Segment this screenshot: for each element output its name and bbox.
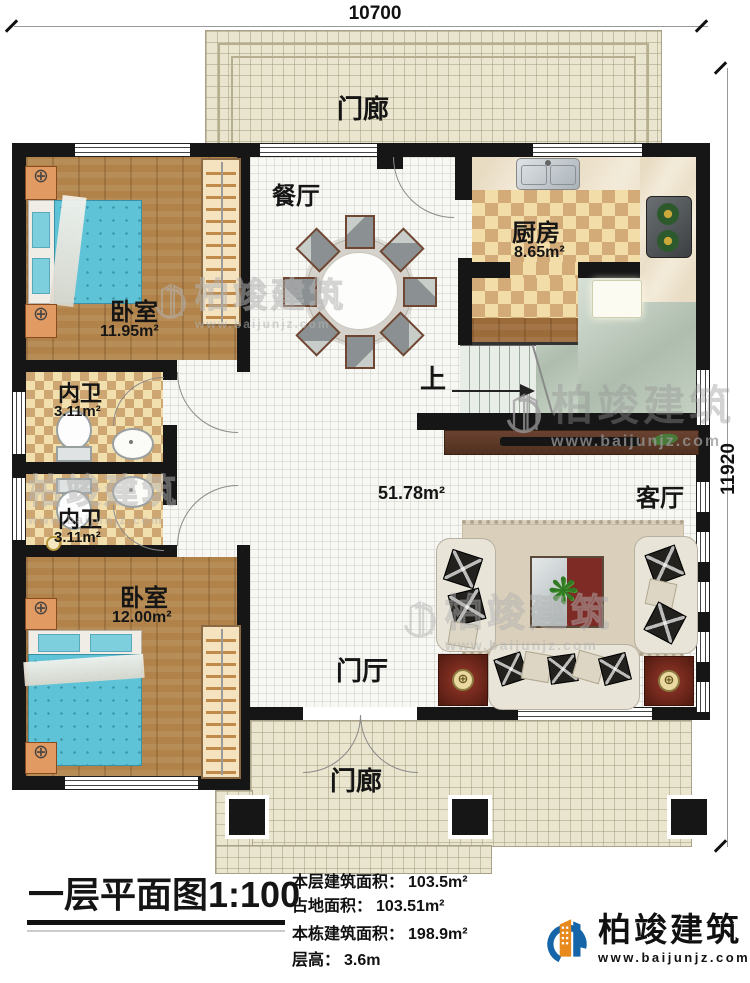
table-lamp: ⊕	[452, 669, 474, 691]
brand-name: 柏竣建筑	[598, 913, 750, 948]
table-lamp: ⊕	[658, 670, 680, 692]
bath-bottom-label: 内卫	[58, 508, 102, 531]
sofa-pillow	[643, 601, 686, 644]
end-table: ⊕	[438, 654, 488, 706]
stairs-up-arrow-line	[452, 390, 522, 392]
brand-logo: 柏竣建筑 www.baijunjz.com	[544, 912, 750, 966]
right-dimension-label: 11920	[718, 437, 740, 501]
top-dimension-line	[14, 26, 708, 27]
dining-chair	[283, 277, 317, 307]
window	[75, 143, 190, 157]
column	[452, 799, 488, 835]
bath-bottom-area: 3.11m²	[54, 530, 101, 546]
wall	[12, 360, 177, 372]
brand-logo-icon	[544, 912, 590, 966]
foyer-label: 门厅	[336, 658, 388, 685]
wardrobe-rail	[221, 629, 223, 775]
window	[696, 682, 710, 712]
kitchen-area: 8.65m²	[514, 245, 565, 262]
window	[696, 582, 710, 612]
wardrobe	[201, 158, 241, 326]
stat-row: 本栋建筑面积：198.9m²	[292, 927, 468, 943]
kitchen-lobe-floor	[472, 278, 578, 318]
stats-block: 本层建筑面积：103.5m² 占地面积：103.51m² 本栋建筑面积：198.…	[292, 875, 468, 969]
wall	[455, 143, 472, 200]
bedroom-bottom-label: 卧室	[120, 586, 168, 611]
column	[229, 799, 265, 835]
bed-pillow	[90, 634, 132, 652]
sink-basin	[550, 165, 576, 185]
bedroom-top-area: 11.95m²	[100, 324, 159, 341]
wardrobe-rail	[221, 162, 223, 322]
dining-chair	[345, 335, 375, 369]
stat-label: 本栋建筑面积：	[292, 926, 404, 943]
bath-top-area: 3.11m²	[54, 404, 101, 420]
stat-label: 本层建筑面积：	[292, 874, 404, 891]
wall	[417, 413, 710, 430]
toilet-tank	[56, 446, 92, 462]
bed-pillow	[38, 634, 80, 652]
coffee-table: ❋	[530, 556, 604, 628]
bedroom-top-label: 卧室	[110, 300, 158, 325]
stat-value: 103.5m²	[408, 874, 468, 891]
bath-top-label: 内卫	[58, 382, 102, 405]
porch-step-strip	[215, 845, 492, 874]
window	[12, 478, 26, 540]
title-underline	[27, 920, 285, 925]
bed	[28, 200, 140, 302]
wall	[163, 425, 177, 505]
living-label: 客厅	[636, 486, 684, 511]
title-underline-thin	[27, 930, 285, 932]
fridge	[592, 280, 642, 318]
sofa-left	[436, 538, 496, 652]
faucet	[545, 160, 551, 166]
top-dimension-label: 10700	[0, 3, 750, 25]
dining-table-top	[320, 252, 398, 330]
bed-pillow	[32, 212, 50, 248]
dining-label: 餐厅	[272, 184, 320, 209]
window	[696, 370, 710, 425]
brand-website: www.baijunjz.com	[598, 950, 750, 965]
stairs	[460, 345, 536, 414]
kitchen-threshold	[472, 318, 578, 343]
column	[671, 799, 707, 835]
porch-top	[205, 30, 662, 147]
stat-value: 103.51m²	[376, 898, 445, 915]
nightstand: ⊕	[25, 598, 57, 630]
stat-label: 层高：	[292, 952, 340, 969]
sink-drain	[129, 488, 133, 492]
kitchen-sink	[516, 158, 580, 190]
sofa-main	[488, 644, 640, 710]
window	[260, 143, 377, 157]
plan-title: 一层平面图1:100	[28, 876, 300, 914]
stat-value: 3.6m	[344, 952, 380, 969]
kitchen-label: 厨房	[512, 221, 560, 246]
wall	[458, 262, 510, 278]
sink-drain	[129, 440, 133, 444]
porch-bottom-label: 门廊	[330, 768, 382, 795]
table-plant: ❋	[548, 570, 578, 612]
porch-step-outline	[231, 56, 636, 146]
nightstand: ⊕	[25, 742, 57, 774]
kitchen-passage-floor	[510, 262, 578, 278]
floor-plan: 10700 11920 门廊 门廊 上	[0, 0, 750, 983]
stat-row: 占地面积：103.51m²	[292, 899, 468, 915]
tv	[500, 437, 640, 446]
window	[696, 632, 710, 662]
sofa-pillow	[598, 652, 632, 686]
sofa-pillow	[443, 549, 483, 589]
stat-value: 198.9m²	[408, 926, 468, 943]
hall-area-label: 51.78m²	[378, 484, 445, 503]
stat-label: 占地面积：	[292, 898, 372, 915]
stairs-up-label: 上	[420, 366, 446, 393]
dimension-tick	[714, 839, 727, 852]
wall	[12, 462, 177, 474]
window	[696, 532, 710, 562]
dimension-tick	[714, 61, 727, 74]
stairs-up-arrowhead	[520, 384, 535, 398]
window	[533, 143, 642, 157]
porch-top-label: 门廊	[337, 96, 389, 123]
burner	[657, 230, 679, 252]
window	[12, 392, 26, 454]
bathroom-sink	[112, 476, 154, 508]
bedroom-bottom-area: 12.00m²	[112, 610, 172, 627]
stove	[646, 196, 692, 258]
dining-chair	[345, 215, 375, 249]
wall	[578, 262, 640, 278]
burner	[657, 203, 679, 225]
wall	[163, 372, 177, 380]
plan-scale: 1:100	[208, 874, 300, 915]
stat-row: 层高：3.6m	[292, 953, 468, 969]
bed-pillow	[32, 258, 50, 294]
nightstand: ⊕	[25, 304, 57, 338]
stat-row: 本层建筑面积：103.5m²	[292, 875, 468, 891]
bathroom-sink	[112, 428, 154, 460]
stairs-railing	[460, 342, 578, 345]
sink-basin	[521, 165, 547, 185]
window	[65, 776, 198, 790]
wardrobe	[201, 625, 241, 779]
sofa-pillow	[447, 621, 478, 649]
end-table: ⊕	[644, 656, 694, 706]
window	[696, 482, 710, 512]
sofa-right	[634, 536, 698, 654]
dining-chair	[403, 277, 437, 307]
nightstand: ⊕	[25, 166, 57, 200]
plan-title-text: 一层平面图	[28, 874, 208, 915]
